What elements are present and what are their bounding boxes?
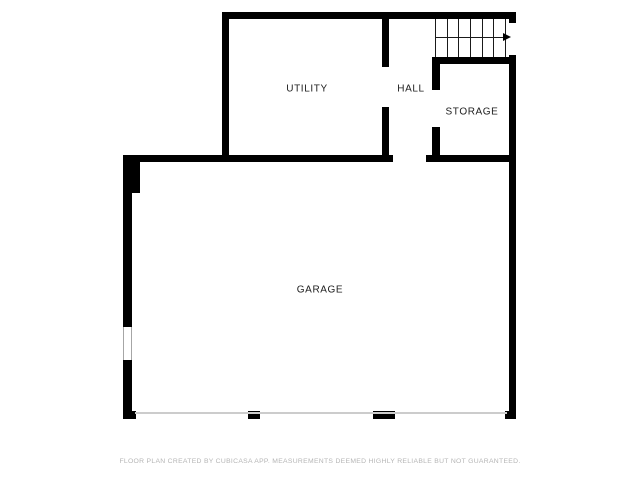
room-label-utility: UTILITY (286, 84, 327, 95)
utility-hall-divider-lower-wall (382, 107, 389, 162)
stair-tread-line (458, 19, 459, 57)
staircase (435, 19, 509, 57)
room-label-garage: GARAGE (297, 285, 343, 296)
right-main-wall (509, 55, 516, 418)
stair-tread-line (470, 19, 471, 57)
garage-left-upper-wall (123, 162, 132, 327)
utility-hall-divider-upper-wall (382, 19, 389, 67)
stair-tread-line (435, 19, 436, 57)
garage-left-lower-wall (123, 360, 132, 418)
storage-top-wall (432, 57, 516, 64)
stair-tread-line (447, 19, 448, 57)
stairs-direction-arrow-icon (503, 33, 511, 41)
garage-left-window (123, 327, 132, 360)
floor-plan-canvas: UTILITYHALLSTORAGEGARAGE FLOOR PLAN CREA… (0, 0, 640, 480)
right-upper-stub-wall (509, 12, 516, 23)
room-label-hall: HALL (397, 84, 424, 95)
room-label-storage: STORAGE (446, 107, 499, 118)
stair-tread-line (493, 19, 494, 57)
stairs-direction-arrow-line (436, 37, 503, 38)
storage-left-upper-wall (432, 64, 440, 90)
top-wall (222, 12, 516, 19)
utility-left-wall (222, 12, 229, 157)
disclaimer-text: FLOOR PLAN CREATED BY CUBICASA APP. MEAS… (0, 458, 640, 465)
hall-storage-bottom-wall (426, 155, 516, 162)
stair-tread-line (482, 19, 483, 57)
garage-top-wall (123, 155, 393, 162)
garage-door-opening-line (135, 412, 507, 414)
